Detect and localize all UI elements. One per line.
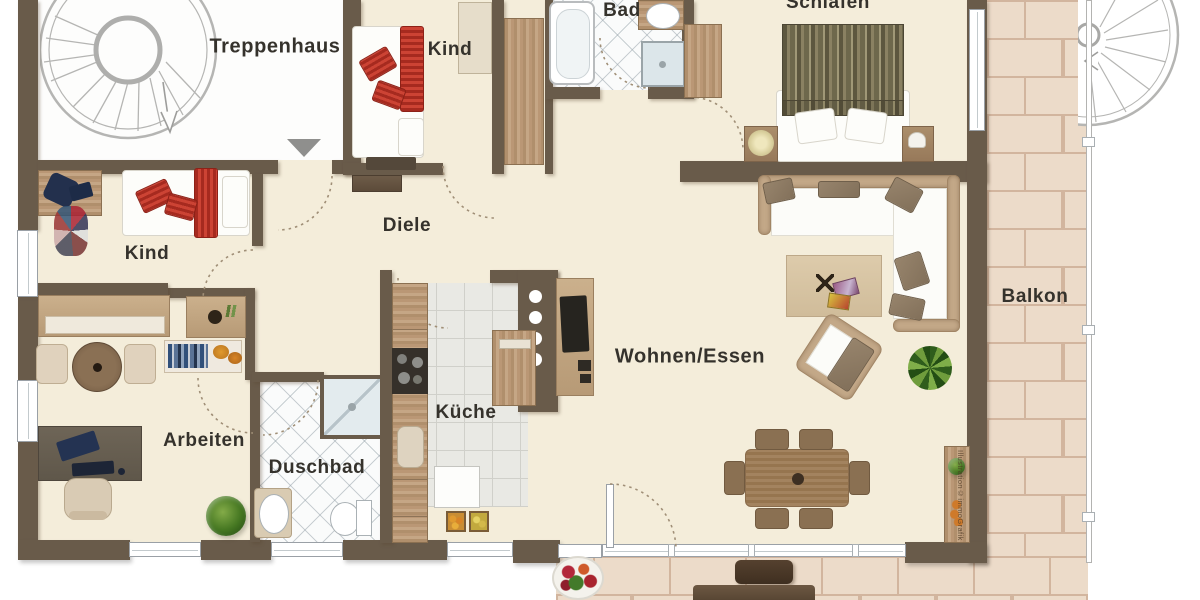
- dining-table: [745, 449, 849, 507]
- burner: [413, 375, 422, 384]
- counter-divider: [393, 479, 427, 480]
- speaker: [578, 360, 591, 371]
- olive-sprig: [221, 305, 241, 317]
- island-top: [499, 339, 531, 349]
- shell-decor: [908, 132, 926, 148]
- plant: [206, 496, 246, 536]
- dining-chair: [755, 508, 789, 529]
- flower-pot: [552, 556, 604, 600]
- burner: [398, 372, 410, 384]
- sideboard: [38, 295, 170, 337]
- round-table: [72, 342, 122, 392]
- magazines: [827, 293, 851, 311]
- room-label-arbeiten: Arbeiten: [163, 430, 245, 452]
- kitchen-island: [492, 330, 536, 406]
- room-label-kueche: Küche: [435, 402, 496, 424]
- sofa-pillow: [818, 181, 860, 198]
- plant: [908, 346, 952, 390]
- burner: [412, 357, 423, 368]
- sink: [259, 494, 289, 534]
- sofa-frame: [893, 319, 960, 332]
- bed-pillow: [398, 118, 424, 156]
- room-label-duschbad: Duschbad: [269, 457, 366, 479]
- toilet-tank: [356, 500, 372, 536]
- fruit-bowl: [213, 345, 229, 359]
- kitchen-table: [434, 466, 480, 508]
- room-label-schlafen: Schlafen: [786, 0, 870, 14]
- dining-chair: [849, 461, 870, 495]
- sink: [646, 3, 680, 29]
- table-centerpiece: [792, 473, 804, 485]
- bathtub: [549, 1, 595, 85]
- counter-divider: [393, 329, 427, 330]
- room-label-treppenhaus: Treppenhaus: [209, 36, 340, 59]
- room-label-balkon: Balkon: [1002, 286, 1069, 308]
- floor-plan: Treppenhaus Kind Bad Schlafen Diele Kind…: [0, 0, 1200, 600]
- bed-duvet: [400, 26, 424, 112]
- tv: [560, 295, 590, 352]
- table-lamp: [748, 130, 774, 156]
- clothes-pile: [54, 206, 88, 256]
- stove: [392, 348, 428, 394]
- door-arc-terrace: [610, 484, 676, 550]
- speaker: [580, 374, 591, 383]
- shower: [641, 41, 685, 87]
- room-label-kind-left: Kind: [125, 243, 170, 265]
- mouse: [118, 468, 125, 475]
- entrance-arrow-icon: [287, 139, 321, 157]
- sofa-frame: [947, 175, 960, 332]
- hall-closet: [504, 18, 544, 165]
- illustrator-watermark: Illustration©immoGrafik: [956, 450, 965, 545]
- bed-pillow: [222, 176, 248, 228]
- burner: [397, 354, 407, 364]
- dining-chair: [799, 429, 833, 450]
- room-label-bad: Bad: [603, 0, 641, 22]
- room-label-diele: Diele: [383, 215, 431, 237]
- door-arc-kind-top: [443, 166, 495, 218]
- wardrobe: [684, 24, 722, 98]
- door-arc-duschbad: [263, 380, 318, 435]
- door-arc-arbeiten: [198, 378, 253, 433]
- hall-dresser: [352, 175, 402, 192]
- wardrobe: [458, 2, 492, 74]
- office-chair: [64, 478, 112, 520]
- chair: [124, 344, 156, 384]
- outdoor-bench: [735, 560, 793, 584]
- outdoor-table: [693, 585, 815, 600]
- room-label-kind-top: Kind: [428, 39, 473, 61]
- dining-chair: [724, 461, 745, 495]
- table-decor: [93, 363, 102, 372]
- bed-bench: [366, 157, 416, 170]
- bathtub-basin: [556, 9, 590, 79]
- decor-bowl: [208, 310, 222, 324]
- shower-drain: [348, 403, 356, 411]
- sideboard-front: [45, 316, 165, 334]
- fruit-crate: [446, 511, 466, 532]
- door-arc-entrance: [278, 176, 332, 230]
- kitchen-sink: [397, 426, 424, 468]
- dining-chair: [755, 429, 789, 450]
- bed-pillow: [844, 107, 888, 144]
- bed-blanket: [782, 24, 904, 106]
- fruit-crate: [469, 511, 489, 532]
- door-arc-schlafen: [690, 97, 743, 150]
- shower-drain: [659, 61, 666, 68]
- door-arc-kind-left: [203, 250, 253, 300]
- chair: [36, 344, 68, 384]
- room-label-wohnen-essen: Wohnen/Essen: [615, 346, 765, 369]
- chair-back: [69, 511, 107, 520]
- dining-chair: [799, 508, 833, 529]
- kitchen-counter: [392, 283, 428, 543]
- bed-pillow: [794, 107, 838, 144]
- books: [168, 344, 208, 368]
- fruit-bowl: [228, 352, 242, 364]
- shower: [320, 375, 384, 439]
- counter-divider: [393, 516, 427, 517]
